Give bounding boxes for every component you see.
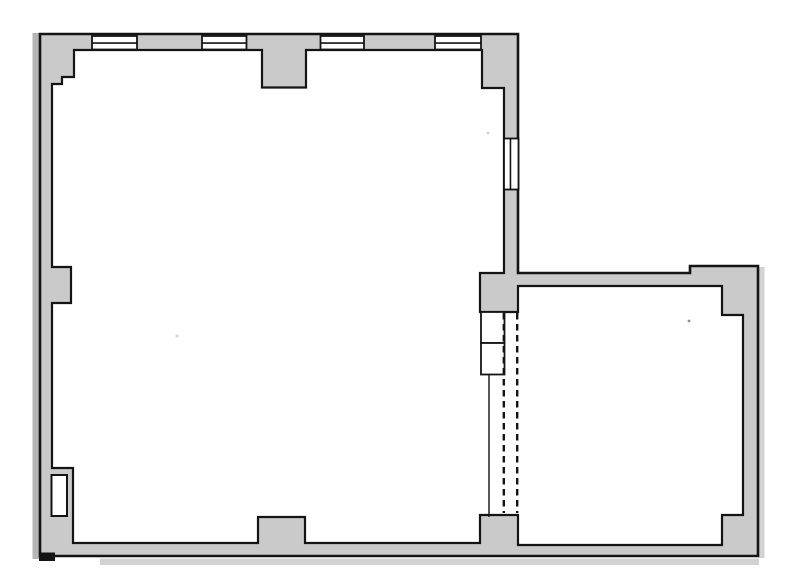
opening-box-lower — [481, 343, 505, 375]
scan-speck-1 — [175, 334, 178, 337]
scan-speck-3 — [688, 320, 691, 323]
room-interior-outline — [52, 50, 743, 545]
scan-speck-2 — [487, 132, 489, 134]
opening-box-upper — [481, 312, 505, 343]
page-shadow-right — [759, 267, 765, 558]
floor-plan-drawing — [0, 0, 787, 588]
left-wall-door-niche — [52, 475, 68, 516]
page-shadow-bottom — [100, 559, 759, 566]
scanned-floor-plan-page — [0, 0, 787, 588]
outer-corner-foot — [39, 553, 55, 562]
page-shadow-left — [33, 33, 40, 559]
floor-plan-root — [33, 33, 765, 565]
